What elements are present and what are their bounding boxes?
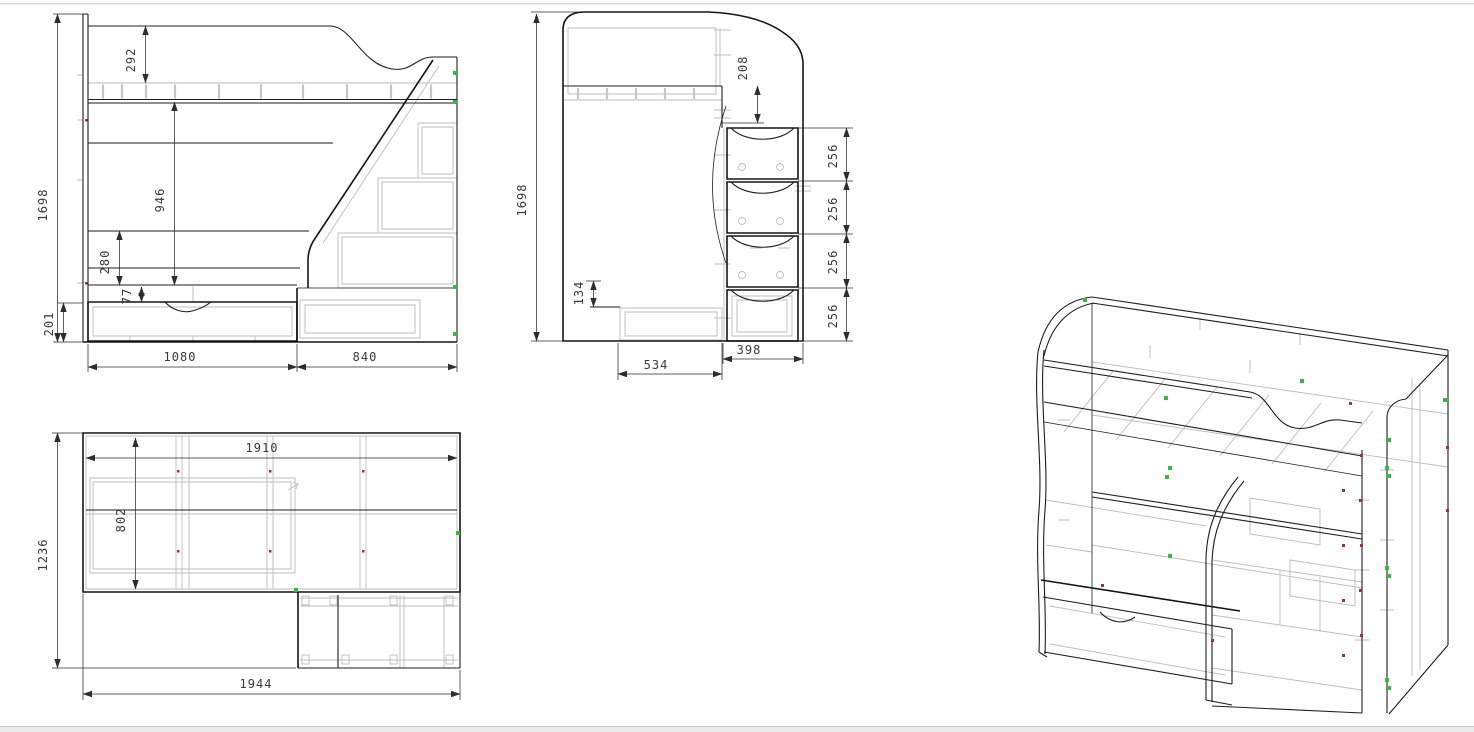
front-view: 1698 292 946 280 77 201 1080 840 <box>36 14 457 372</box>
dim-side-step-3: 256 <box>826 250 840 275</box>
dim-front-stairs-width: 840 <box>353 350 378 364</box>
dim-front-base: 280 <box>98 250 112 275</box>
dim-top-overall-length: 1944 <box>240 677 273 691</box>
dim-side-step-2: 256 <box>826 197 840 222</box>
dim-side-stairs-depth: 398 <box>737 343 762 357</box>
dim-front-total-height: 1698 <box>36 189 50 222</box>
dim-side-rail-offset: 208 <box>736 56 750 81</box>
iso-drawer-handle <box>1100 612 1135 622</box>
dim-front-top-section: 292 <box>124 48 138 73</box>
dim-front-plinth: 201 <box>42 312 56 337</box>
side-outline <box>563 12 803 341</box>
dim-side-step-4: 256 <box>826 304 840 329</box>
dim-top-inner-width: 802 <box>114 508 128 533</box>
front-dimensions: 1698 292 946 280 77 201 1080 840 <box>36 14 457 372</box>
stair-unit-plan <box>298 592 460 668</box>
dim-top-inner-length: 1910 <box>246 441 279 455</box>
side-view: 1698 208 256 256 256 256 134 534 398 <box>515 12 853 380</box>
front-drawer <box>88 302 297 341</box>
dim-front-opening: 946 <box>153 188 167 213</box>
dim-side-total-height: 1698 <box>515 184 529 217</box>
dim-side-step-1: 256 <box>826 144 840 169</box>
dim-side-plinth-step: 134 <box>572 281 586 306</box>
side-hidden-lines <box>563 28 811 341</box>
cad-drawing: 1698 292 946 280 77 201 1080 840 <box>0 0 1474 732</box>
isometric-view <box>1037 297 1449 714</box>
top-hidden-lines <box>86 436 458 668</box>
iso-outline <box>1037 297 1448 714</box>
front-hidden-lines <box>77 66 457 341</box>
stair-stringer <box>308 60 433 288</box>
cad-drawing-page: 1698 292 946 280 77 201 1080 840 <box>0 0 1474 732</box>
dim-top-overall-depth: 1236 <box>36 539 50 572</box>
top-view: 1236 1910 802 1944 <box>36 433 460 700</box>
page-top-edge <box>0 3 1474 5</box>
dim-side-bed-depth: 534 <box>644 358 669 372</box>
dim-front-drawer-offset: 77 <box>120 288 134 304</box>
dim-front-bed-width: 1080 <box>164 350 197 364</box>
top-markers <box>177 470 460 592</box>
iso-markers <box>1083 298 1449 690</box>
iso-hidden-lines <box>1046 318 1448 690</box>
front-markers <box>85 71 457 336</box>
